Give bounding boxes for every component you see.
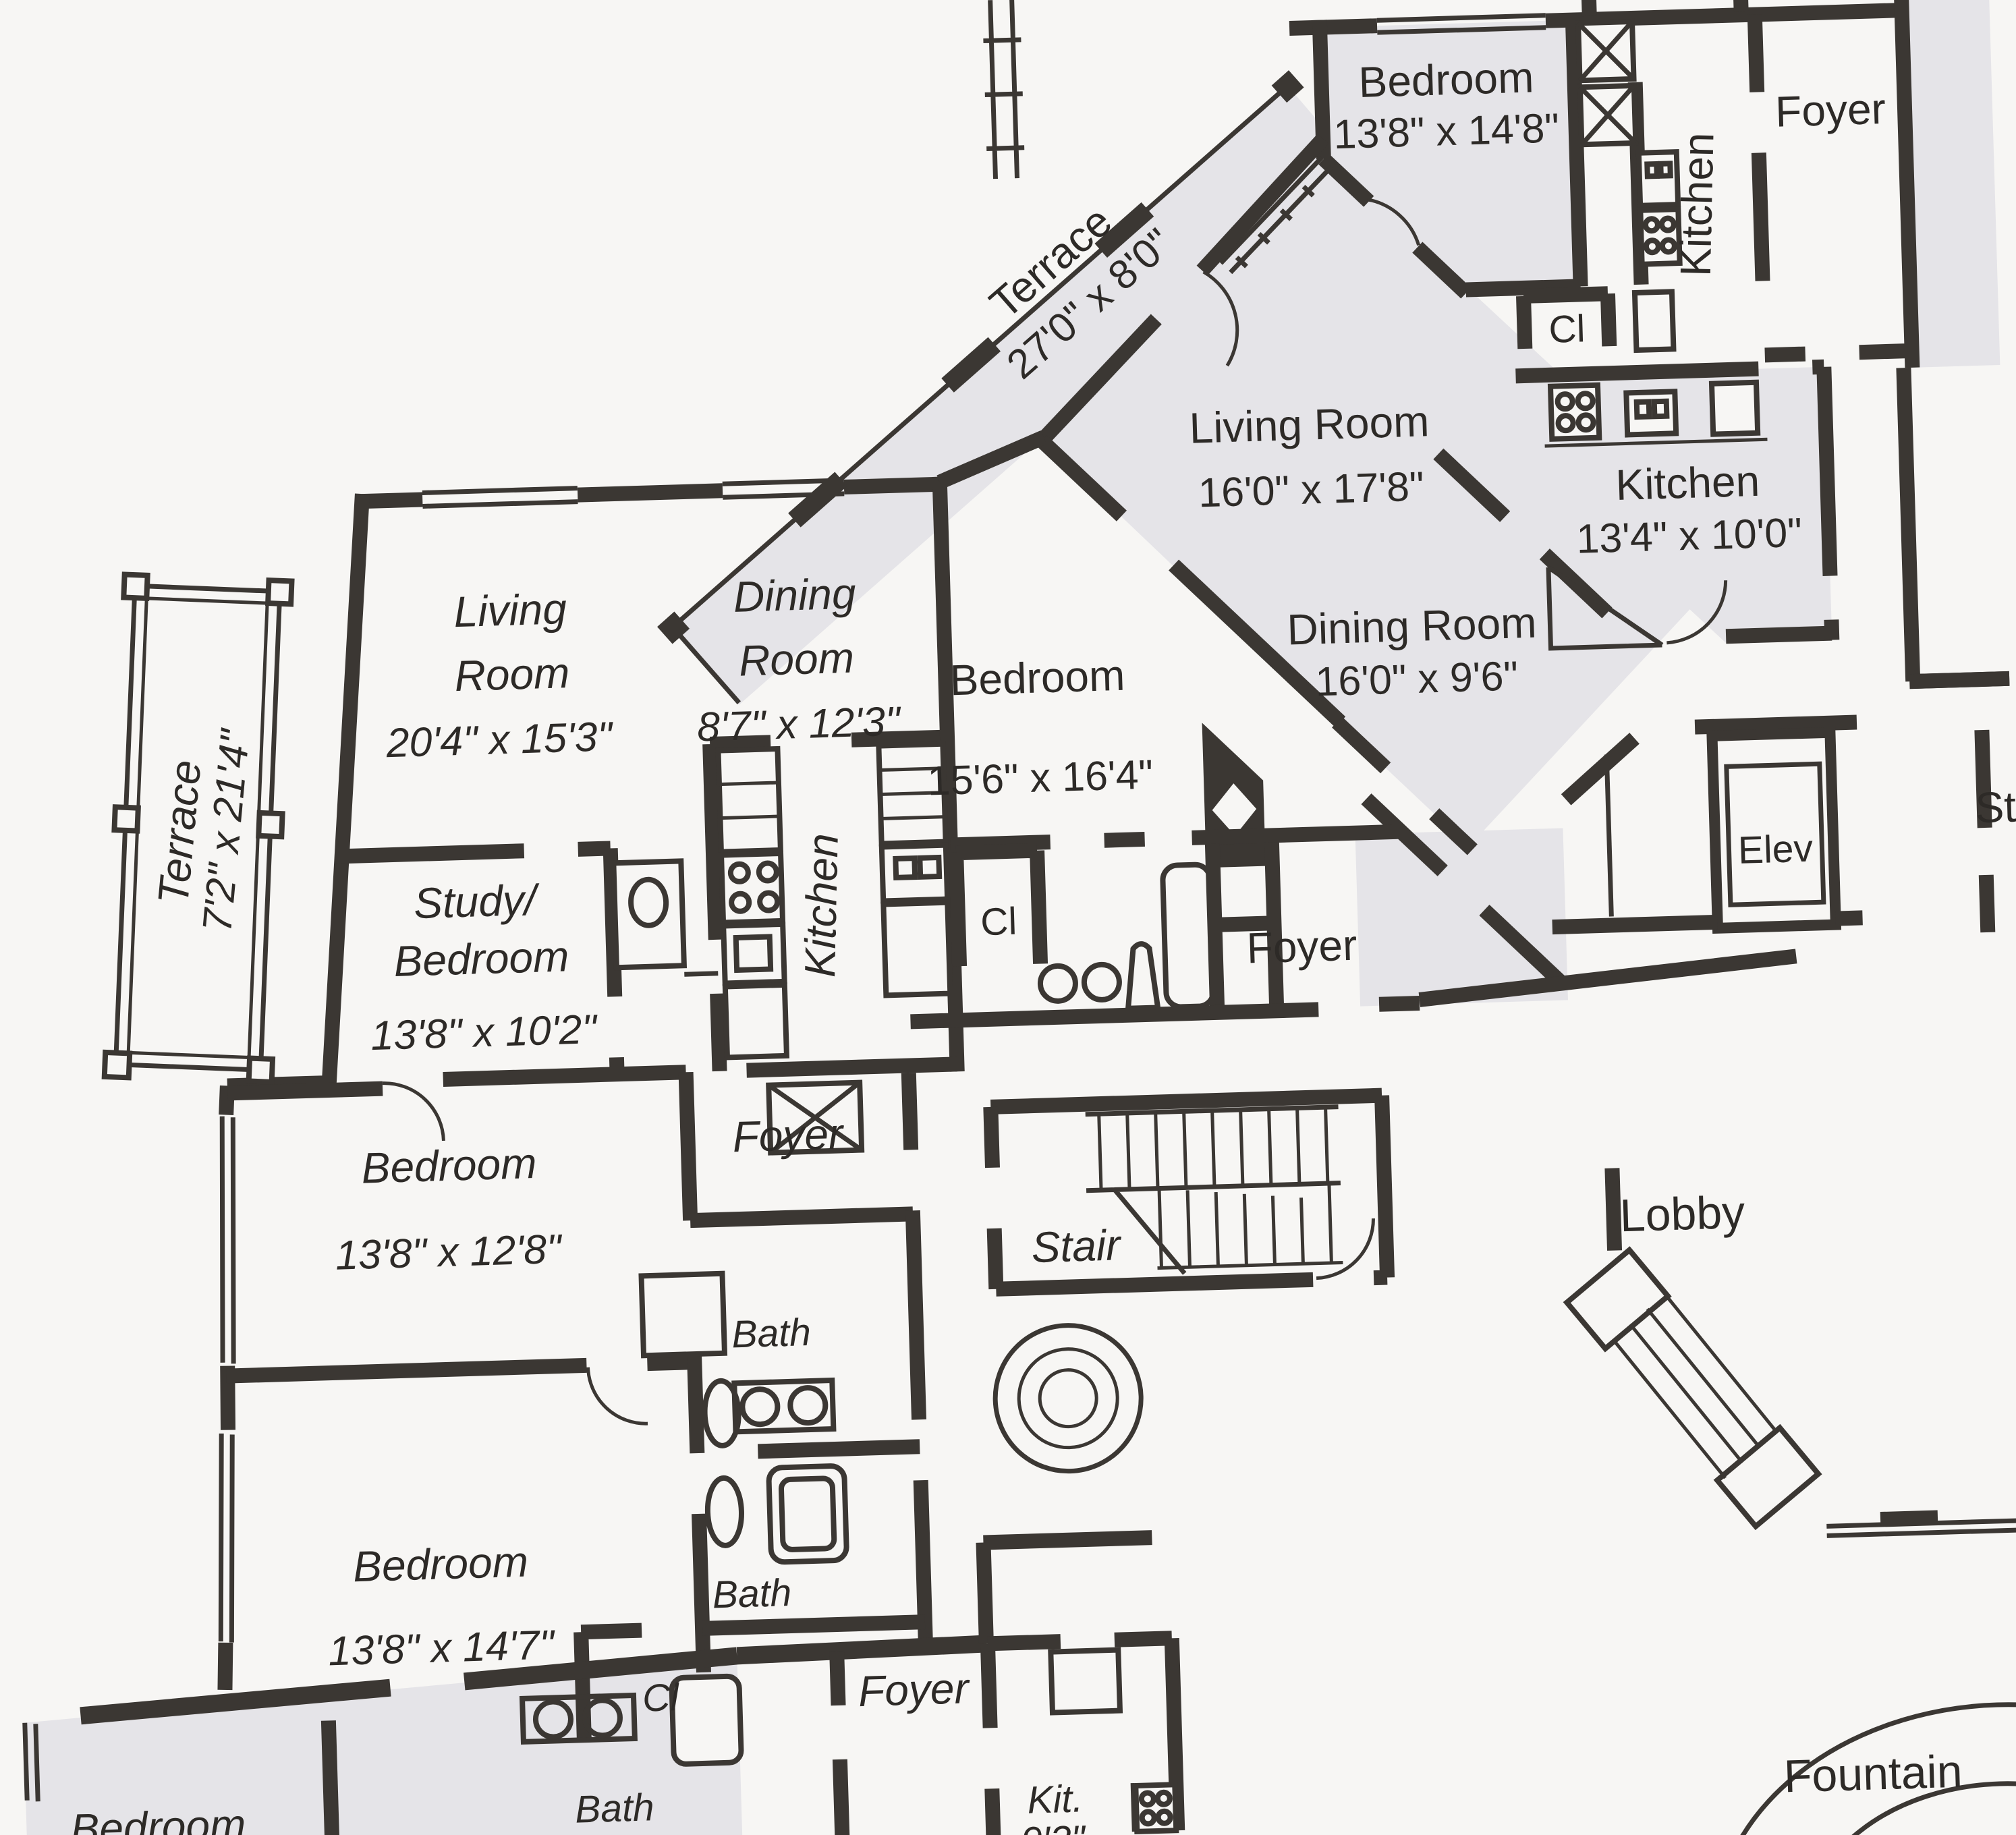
label-study-2: Bedroom <box>393 932 570 986</box>
label-stair-right: St <box>1975 783 2016 832</box>
label-bedroom3-dims: 13'8" x 14'7" <box>328 1621 557 1674</box>
stair-room <box>986 1096 1393 1473</box>
label-ne-dining-dims: 16'0" x 9'6" <box>1315 652 1519 704</box>
label-study-dims: 13'8" x 10'2" <box>370 1006 598 1058</box>
label-ne-foyer: Foyer <box>1246 921 1358 973</box>
label-bedroom2: Bedroom <box>361 1139 538 1193</box>
label-fountain: Fountain <box>1783 1746 1963 1803</box>
label-ne-living-dims: 16'0" x 17'8" <box>1198 463 1424 515</box>
floor-plan-page: Living Room 20'4" x 15'3" Dining Room 8'… <box>0 0 2016 1835</box>
label-elev: Elev <box>1737 827 1814 872</box>
label-ne-bedroom2: Bedroom <box>949 651 1126 705</box>
label-left-dining-1: Dining <box>733 569 857 621</box>
lobby-features <box>1563 1149 2016 1835</box>
label-left-dining-dims: 8'7" x 12'3" <box>696 698 902 750</box>
label-bottom-bedroom: Bedroom <box>70 1800 247 1835</box>
label-ne-kitchen-dims: 13'4" x 10'0" <box>1575 509 1802 562</box>
floor-plan-drawing: Living Room 20'4" x 15'3" Dining Room 8'… <box>0 0 2016 1835</box>
label-ne-cl2: Cl <box>1548 307 1586 351</box>
label-kit: Kit. <box>1027 1777 1084 1822</box>
label-ne-kitchen: Kitchen <box>1615 457 1761 509</box>
label-stair: Stair <box>1031 1220 1123 1272</box>
label-left-living-2: Room <box>454 648 571 700</box>
label-ne-bedroom2-dims: 15'6" x 16'4" <box>927 752 1154 804</box>
label-left-kitchen: Kitchen <box>795 833 847 978</box>
elevator-core <box>1545 679 2016 945</box>
label-left-dining-2: Room <box>738 633 855 685</box>
label-bedroom2-dims: 13'8" x 12'8" <box>335 1226 563 1278</box>
label-left-living-1: Living <box>453 584 568 636</box>
label-left-cl: Cl <box>642 1676 680 1720</box>
left-bath-fixtures <box>704 1378 847 1564</box>
label-ne-living: Living Room <box>1189 397 1430 453</box>
label-left-foyer: Foyer <box>732 1109 845 1161</box>
label-bedroom3: Bedroom <box>352 1537 529 1591</box>
label-kit-dims: 9'3" <box>1020 1817 1087 1835</box>
label-ne-cl: Cl <box>980 900 1017 944</box>
label-ne-dining: Dining Room <box>1286 598 1537 654</box>
label-bottom-foyer: Foyer <box>858 1664 971 1716</box>
label-study-1: Study/ <box>413 876 541 928</box>
label-bath1: Bath <box>731 1311 812 1356</box>
label-left-terrace-dims: 7'2" x 21'4" <box>194 727 258 934</box>
label-bath2: Bath <box>712 1571 792 1616</box>
label-left-living-dims: 20'4" x 15'3" <box>385 713 615 766</box>
label-tr-foyer: Foyer <box>1774 84 1886 136</box>
label-tr-kitchen: Kitchen <box>1671 132 1723 277</box>
label-ne-bedroom: Bedroom <box>1358 53 1535 107</box>
label-lobby: Lobby <box>1619 1187 1745 1241</box>
label-bottom-bath: Bath <box>574 1786 654 1831</box>
label-ne-bedroom-dims: 13'8" x 14'8" <box>1333 105 1559 157</box>
